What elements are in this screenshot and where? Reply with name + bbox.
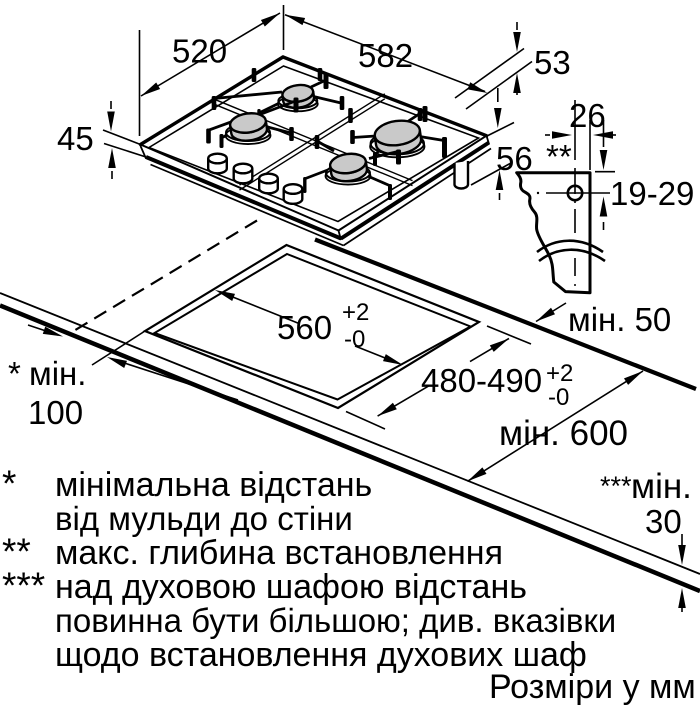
svg-text:480-490: 480-490 [421,362,542,399]
svg-text:582: 582 [358,37,413,74]
svg-text:від мульди до стіни: від мульди до стіни [55,500,353,537]
svg-text:мін.: мін. [29,355,86,392]
svg-text:мін. 50: мін. 50 [568,301,671,338]
svg-text:макс. глибина встановлення: макс. глибина встановлення [55,534,503,572]
svg-text:30: 30 [645,503,682,540]
svg-text:19-29: 19-29 [610,175,694,212]
svg-text:56: 56 [496,140,533,177]
svg-text:**: ** [546,138,572,175]
svg-text:100: 100 [28,394,83,431]
svg-text:повинна бути більшою; див. вка: повинна бути більшою; див. вказівки [55,602,616,639]
svg-text:Розміри у мм: Розміри у мм [489,668,696,706]
svg-text:45: 45 [57,120,94,157]
svg-text:над духовою шафою відстань: над духовою шафою відстань [55,568,527,606]
svg-text:53: 53 [534,44,571,81]
svg-text:мін.: мін. [631,467,692,506]
svg-text:мінімальна відстань: мінімальна відстань [55,466,372,504]
svg-text:+2: +2 [342,299,369,326]
svg-text:*: * [2,463,16,504]
svg-text:***: *** [600,471,632,501]
svg-text:-0: -0 [548,384,569,411]
svg-text:***: *** [2,565,45,606]
svg-text:520: 520 [172,33,227,70]
svg-text:мін. 600: мін. 600 [499,414,628,453]
svg-text:-0: -0 [344,326,365,353]
svg-text:+2: +2 [546,360,573,387]
svg-text:26: 26 [569,97,606,134]
svg-text:*: * [8,355,21,392]
svg-text:560: 560 [277,309,332,346]
